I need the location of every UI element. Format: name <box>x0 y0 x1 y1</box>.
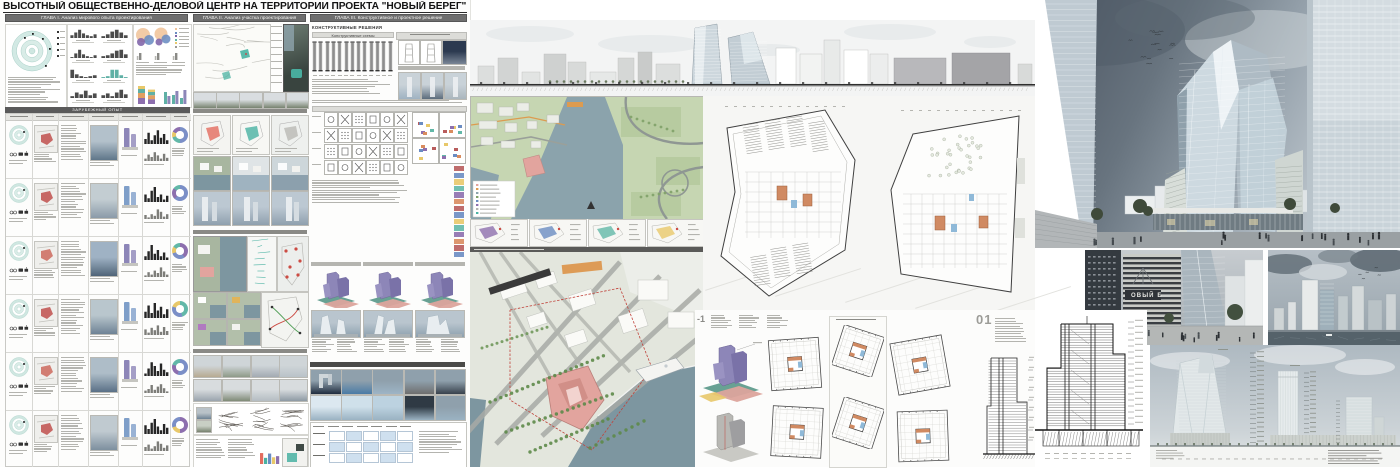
text-line <box>61 217 81 218</box>
text-line <box>836 319 876 320</box>
variant-aerial <box>227 292 261 319</box>
panel-header-right <box>396 32 467 40</box>
text-line <box>61 191 80 192</box>
parking-level-plan <box>707 98 869 308</box>
text-line <box>338 75 342 76</box>
text-line <box>61 441 83 442</box>
text-line <box>228 442 252 443</box>
map-blob <box>35 126 57 152</box>
text-line <box>9 337 23 338</box>
text-line <box>196 444 217 445</box>
water <box>210 305 226 318</box>
facade-strip-cell <box>454 245 464 250</box>
facade-strip-cell <box>454 239 464 244</box>
site-map-thumbnail <box>34 415 58 443</box>
structural-plan-icon <box>366 128 380 143</box>
text-line <box>172 62 185 63</box>
text-line <box>61 125 76 126</box>
structural-solutions-title: КОНСТРУКТИВНЫЕ РЕШЕНИЯ <box>312 25 382 30</box>
concentric-rings-diagram <box>8 27 56 75</box>
typical-floor-plan <box>832 397 884 449</box>
text-line <box>34 158 52 159</box>
block <box>214 166 222 172</box>
plan-symbol <box>353 161 365 174</box>
text-line <box>172 327 183 328</box>
donut-chart <box>172 127 188 143</box>
facade-strip-cell <box>454 252 464 257</box>
text-line <box>61 214 77 215</box>
donut-hole <box>176 189 183 196</box>
text-line <box>103 42 125 43</box>
structural-plan-icon <box>352 160 366 175</box>
sketch-band <box>193 403 309 435</box>
text-line <box>995 341 1026 342</box>
text-line <box>337 349 352 350</box>
text-line <box>61 320 77 321</box>
text-line <box>61 159 83 160</box>
text-line <box>371 426 382 427</box>
general-plan-fragment <box>470 247 703 467</box>
text-line <box>441 351 460 352</box>
text-line <box>739 322 757 323</box>
text-line <box>312 202 399 203</box>
plan-symbol <box>395 145 407 158</box>
tower-silhouette <box>430 77 435 97</box>
highrise-photo <box>444 72 467 100</box>
core-scheme-glyph <box>375 41 380 73</box>
text-line <box>995 321 1016 322</box>
project-title: ВЫСОТНЫЙ ОБЩЕСТВЕННО-ДЕЛОВОЙ ЦЕНТР НА ТЕ… <box>3 1 467 13</box>
text-line <box>197 148 219 149</box>
skyline-bar-chart-secondary <box>144 324 169 335</box>
text-line <box>61 183 85 184</box>
text-line <box>416 349 434 350</box>
text-line <box>34 214 53 215</box>
typical-floor-plan <box>767 402 827 462</box>
text-line <box>312 344 334 345</box>
text-line <box>172 269 187 270</box>
text-line <box>767 325 787 326</box>
text-line <box>34 386 55 387</box>
text-line <box>419 444 457 445</box>
text-line <box>61 317 84 318</box>
routes <box>262 293 308 347</box>
text-line <box>441 349 459 350</box>
chapter1-analytics-panels <box>5 24 190 106</box>
text-line <box>312 192 397 193</box>
typical-floor-plan <box>889 334 951 396</box>
text-line <box>61 436 76 437</box>
general-plan-drawing <box>470 252 703 467</box>
color-cell <box>423 132 427 135</box>
concept-sketch <box>276 406 305 432</box>
text-line <box>61 367 83 368</box>
text-line <box>61 138 76 139</box>
structure-line-drawing <box>398 40 420 65</box>
reference-photo <box>193 379 222 402</box>
structural-plan-icon <box>394 128 408 143</box>
route-map <box>261 292 309 348</box>
text-line <box>172 148 185 149</box>
text-line <box>312 100 449 101</box>
building-photo <box>90 241 118 277</box>
text-line <box>61 130 76 131</box>
text-line <box>364 339 382 340</box>
references-header <box>310 362 465 367</box>
text-line <box>144 222 164 223</box>
massing-diagram <box>121 416 140 442</box>
water <box>210 332 226 345</box>
text-line <box>61 241 79 242</box>
donut-hole <box>176 421 183 428</box>
water <box>244 332 260 345</box>
text-line <box>34 332 55 333</box>
text-line <box>61 380 82 381</box>
elevations-scene <box>1150 345 1400 467</box>
text-line <box>103 102 125 103</box>
block <box>278 163 287 170</box>
grouped-bar-chart <box>162 83 188 105</box>
text-line <box>419 452 449 453</box>
donut-chart <box>172 243 188 259</box>
text-line <box>60 37 65 38</box>
cctv-leg <box>328 374 332 385</box>
reference-photo <box>435 369 467 395</box>
network-map <box>247 236 277 292</box>
facade-strip-cell <box>454 225 464 230</box>
text-line <box>34 270 52 271</box>
text-line <box>172 271 182 272</box>
text-line <box>228 457 245 458</box>
text-line <box>419 447 452 448</box>
text-line <box>72 82 94 83</box>
text-line <box>419 431 458 432</box>
text-line <box>144 164 164 165</box>
text-line <box>61 302 85 303</box>
site-photo <box>279 355 308 378</box>
text-line <box>34 277 54 278</box>
text-line <box>337 351 357 352</box>
text-line <box>767 315 780 316</box>
text-line <box>357 75 361 76</box>
mini-histograms-panel <box>67 24 133 108</box>
variant-massing-axon <box>313 268 359 308</box>
building-photo <box>90 183 118 219</box>
plan-symbol <box>325 113 337 126</box>
text-line <box>271 75 282 76</box>
plan-symbol <box>325 161 337 174</box>
text-line <box>995 336 1023 337</box>
text-line <box>61 204 78 205</box>
building-photo <box>90 125 118 161</box>
table-cell <box>329 431 345 441</box>
text-line <box>61 186 76 187</box>
text-line <box>121 155 137 156</box>
structural-plan-icon <box>366 144 380 159</box>
text-line <box>61 143 86 144</box>
text-line <box>61 428 83 429</box>
text-line <box>34 393 51 394</box>
aerial-thumbnail <box>193 156 231 191</box>
aerial-thumbnail <box>271 156 309 191</box>
skyline-bar-chart-secondary <box>144 150 169 161</box>
text-line <box>61 272 81 273</box>
tower-night-photo <box>442 40 467 65</box>
text-line <box>995 318 1015 319</box>
table-cell <box>397 431 413 441</box>
city-streets <box>194 25 270 91</box>
panorama-photo <box>239 92 263 109</box>
functional-massing-axon <box>697 338 763 402</box>
text-line <box>312 199 395 200</box>
legend-dot <box>57 31 59 33</box>
text-line <box>136 69 182 70</box>
text-line <box>331 75 335 76</box>
text-line <box>179 36 189 37</box>
text-line <box>389 341 404 342</box>
text-line <box>61 244 79 245</box>
plan-symbol <box>353 145 365 158</box>
massing-diagram <box>121 358 140 384</box>
text-line <box>90 220 110 221</box>
text-line <box>179 39 189 40</box>
text-line <box>34 335 55 336</box>
text-line <box>172 443 182 444</box>
mini-bar-chart <box>70 67 97 78</box>
text-line <box>419 441 461 442</box>
legend-swatch <box>175 28 177 30</box>
text-line <box>172 387 183 388</box>
text-line <box>312 93 380 94</box>
facade-strip-cell <box>454 179 464 184</box>
block <box>292 166 300 172</box>
text-line <box>107 100 121 101</box>
tower-shape <box>286 197 292 221</box>
typical-floor-plan <box>893 406 953 466</box>
target-radius-diagram-panel <box>5 24 67 108</box>
text-line <box>136 62 149 63</box>
plan-symbol <box>395 161 407 174</box>
text-line <box>196 452 224 453</box>
text-line <box>337 346 351 347</box>
text-line <box>196 439 218 440</box>
plan-symbol <box>325 145 337 158</box>
text-line <box>179 32 189 33</box>
text-line <box>90 455 114 456</box>
text-line <box>9 450 27 451</box>
text-line <box>76 100 90 101</box>
legend-swatch <box>175 46 177 48</box>
structural-plan-icon <box>324 144 338 159</box>
map-blob <box>35 242 57 268</box>
mini-bar-chart <box>101 87 128 98</box>
variant-silhouette <box>312 311 360 337</box>
radius-rings-mini <box>9 357 29 377</box>
table-cell <box>380 431 396 441</box>
color-cell <box>458 131 462 134</box>
structural-plan-icon <box>380 144 394 159</box>
color-cell <box>421 145 425 148</box>
transport-icons <box>9 266 29 273</box>
text-line <box>342 426 353 427</box>
text-line <box>228 452 253 453</box>
skyline-bar-chart <box>144 302 169 318</box>
radius-rings-mini <box>9 415 29 435</box>
section-drawing <box>1035 310 1147 467</box>
analysis-maps-row <box>470 219 703 246</box>
plan-symbol <box>339 113 351 126</box>
accent-block <box>198 297 206 303</box>
text-line <box>8 94 40 95</box>
text-line <box>419 439 456 440</box>
text-line <box>271 82 282 83</box>
text-line <box>121 387 137 388</box>
massing-diagram <box>121 300 140 326</box>
text-line <box>172 322 188 323</box>
tower-elevations-panel <box>1150 345 1400 467</box>
variant-silhouette <box>364 311 412 337</box>
skyline-bar-chart-secondary <box>144 440 169 451</box>
text-line <box>313 444 325 445</box>
skyline-bar-chart-secondary <box>144 382 169 393</box>
structural-plan-icon <box>394 144 408 159</box>
text-line <box>312 180 398 181</box>
text-line <box>61 133 81 134</box>
skyline-bar-chart <box>144 360 169 376</box>
text-line <box>313 75 317 76</box>
map-blob <box>35 184 57 210</box>
text-line <box>312 185 404 186</box>
render-thumbnail <box>271 191 309 226</box>
text-line <box>8 89 60 90</box>
highrise-photo <box>421 72 444 100</box>
text-line <box>61 193 86 194</box>
legend-swatch <box>175 39 177 41</box>
text-line <box>90 278 110 279</box>
text-line <box>61 128 77 129</box>
text-line <box>34 451 47 452</box>
plan-symbol <box>381 113 393 126</box>
donut-chart <box>172 417 188 433</box>
text-line <box>767 320 788 321</box>
text-line <box>9 395 23 396</box>
facade-strip-cell <box>454 219 464 224</box>
text-line <box>61 386 76 387</box>
text-line <box>90 165 114 166</box>
structural-plan-icon <box>366 160 380 175</box>
text-line <box>61 141 86 142</box>
map-patches <box>530 220 586 246</box>
table-cell <box>346 453 362 463</box>
text-line <box>61 188 79 189</box>
map-blob <box>35 358 57 384</box>
site-highlight <box>291 69 302 78</box>
reference-photo <box>279 379 308 402</box>
text-line <box>61 299 80 300</box>
water-area <box>284 25 294 51</box>
text-line <box>416 346 432 347</box>
text-line <box>146 116 166 117</box>
waterfront-scene <box>1268 250 1400 345</box>
text-line <box>312 346 326 347</box>
text-line <box>61 206 76 207</box>
text-line <box>8 97 48 98</box>
analysis-map-thumbnail <box>193 115 231 155</box>
plan-symbol <box>339 145 351 158</box>
text-line <box>400 426 411 427</box>
structural-plan-icon <box>338 112 352 127</box>
text-line <box>8 79 53 80</box>
text-line <box>767 322 780 323</box>
structural-plan-icon <box>324 112 338 127</box>
text-line <box>228 444 254 445</box>
text-line <box>196 442 220 443</box>
text-line <box>60 49 65 50</box>
block <box>200 163 209 170</box>
stacked-bar-chart <box>135 83 161 105</box>
color-cell <box>419 122 423 125</box>
facade-strip-cell <box>454 166 464 171</box>
text-line <box>388 75 392 76</box>
text-line <box>103 82 125 83</box>
text-line <box>34 330 46 331</box>
text-line <box>60 55 65 56</box>
dark-patch <box>296 444 304 451</box>
variant-aerial <box>193 292 227 319</box>
analysis-map-thumbnail <box>529 219 587 247</box>
text-line <box>172 208 182 209</box>
plan-symbol <box>381 145 393 158</box>
text-line <box>319 75 323 76</box>
text-line <box>61 257 85 258</box>
bubble-chart <box>135 26 173 50</box>
text-line <box>995 333 1021 334</box>
text-line <box>61 262 84 263</box>
text-line <box>136 74 166 75</box>
site-map-thumbnail <box>34 299 58 327</box>
text-line <box>364 344 385 345</box>
text-line <box>197 151 213 152</box>
building-photo <box>90 357 118 393</box>
core-scheme-glyph <box>344 41 349 73</box>
water-band <box>194 175 230 190</box>
text-line <box>364 346 377 347</box>
text-line <box>364 341 378 342</box>
text-line <box>364 349 383 350</box>
structural-plan-icon <box>352 112 366 127</box>
legend-dot <box>57 37 59 39</box>
text-line <box>312 84 390 85</box>
text-line <box>121 271 137 272</box>
text-line <box>61 383 77 384</box>
text-line <box>312 194 379 195</box>
text-line <box>90 394 110 395</box>
radius-rings-mini <box>9 183 29 203</box>
radius-rings-mini <box>9 241 29 261</box>
color-cell <box>449 130 453 133</box>
color-cell <box>426 124 430 127</box>
variant-render <box>311 310 361 338</box>
bubble-comparison-panel <box>133 24 192 108</box>
text-line <box>364 351 384 352</box>
text-line <box>172 213 184 214</box>
text-line <box>34 219 46 220</box>
color-cell <box>450 126 454 129</box>
text-line <box>61 438 84 439</box>
text-line <box>337 344 350 345</box>
transport-icons <box>9 150 29 157</box>
text-line <box>121 329 137 330</box>
